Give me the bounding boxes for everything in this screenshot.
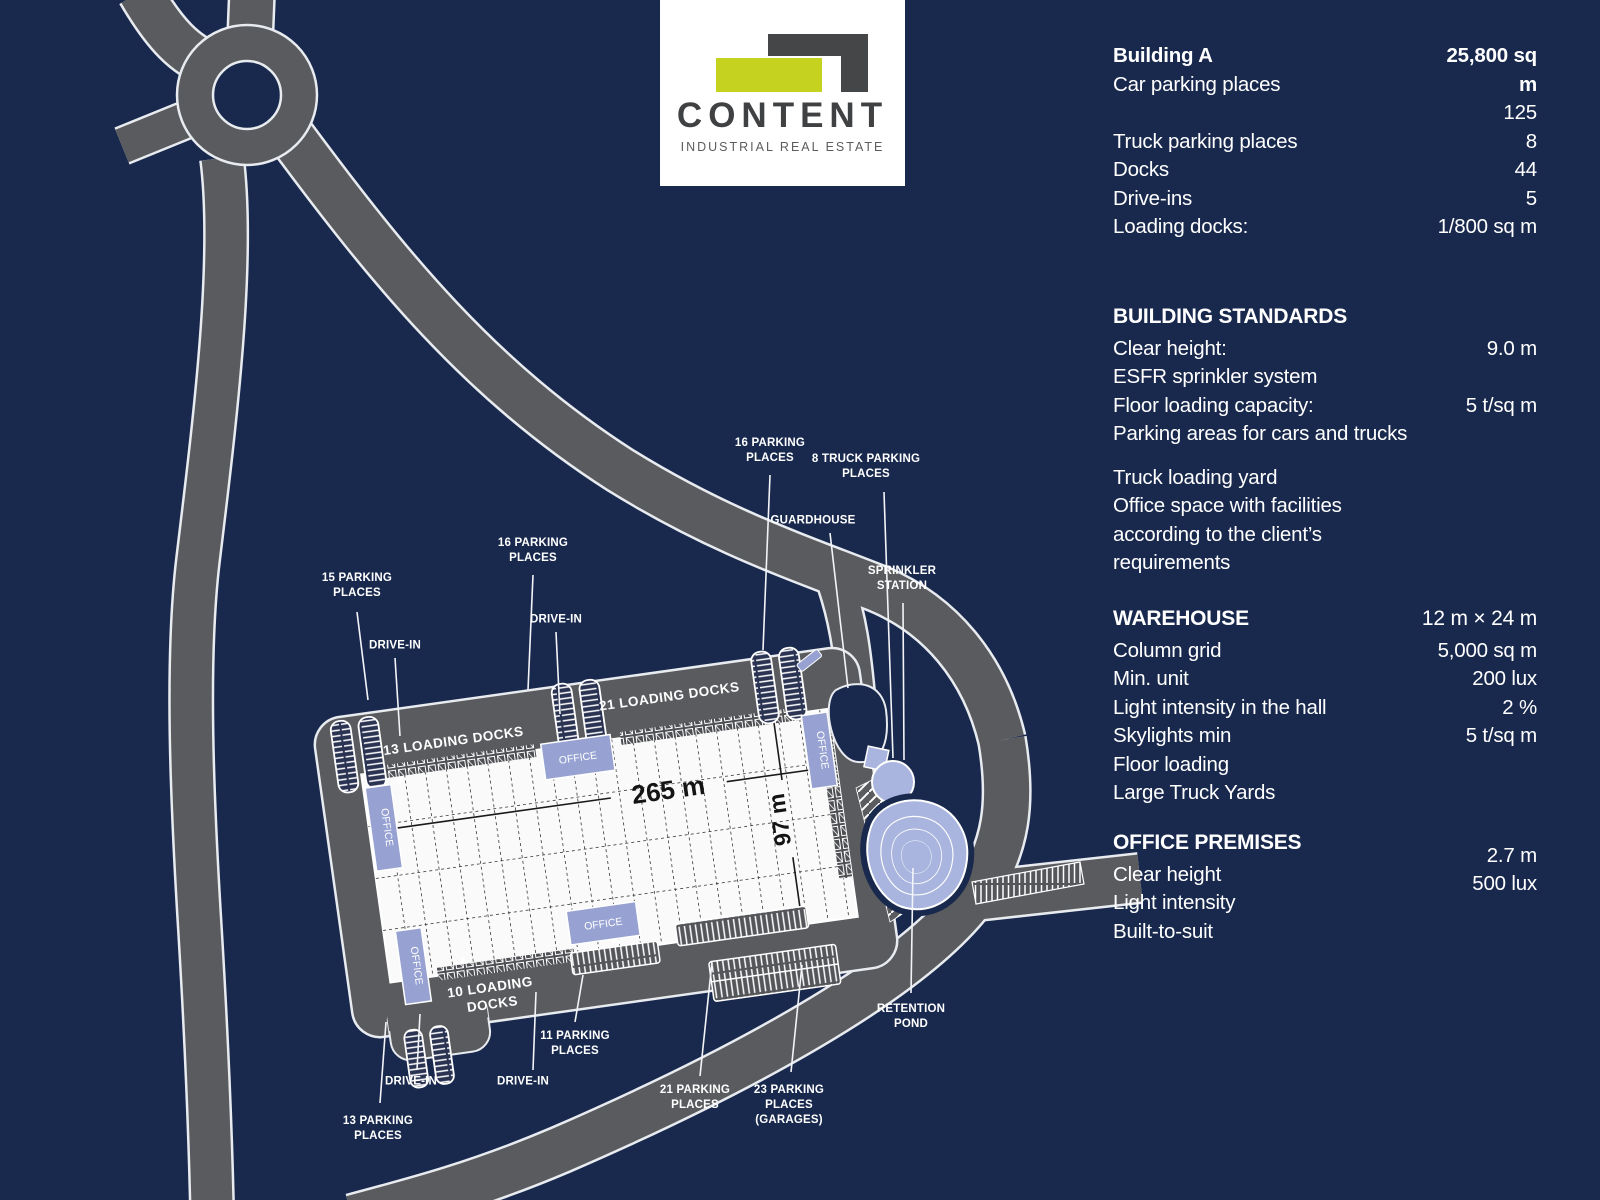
parking-11-label: 11 PARKING PLACES	[540, 1029, 610, 1059]
spec-value: 5	[1429, 185, 1537, 214]
spec-label: Built-to-suit	[1113, 918, 1429, 947]
parking-16-mid-label: 16 PARKING PLACES	[498, 536, 568, 566]
section-heading: WAREHOUSE	[1113, 604, 1249, 633]
parking-21-label: 21 PARKING PLACES	[660, 1083, 730, 1113]
spec-label: Office space with facilities according t…	[1113, 492, 1429, 578]
spec-value: 44	[1429, 156, 1537, 185]
spec-row: Column grid5,000 sq m	[1113, 637, 1537, 666]
logo-wordmark: CONTENT	[660, 96, 905, 136]
spec-row: 125	[1113, 99, 1537, 128]
spec-row: ESFR sprinkler system	[1113, 363, 1537, 392]
spec-value: 5,000 sq m	[1429, 637, 1537, 666]
spec-label: Floor loading	[1113, 751, 1429, 780]
spec-label: Loading docks:	[1113, 213, 1429, 242]
spec-value: 5 t/sq m	[1429, 722, 1537, 751]
spec-label: Min. unit	[1113, 665, 1429, 694]
spec-label: ESFR sprinkler system	[1113, 363, 1429, 392]
spec-value: 1/800 sq m	[1429, 213, 1537, 242]
spec-row: Docks44	[1113, 156, 1537, 185]
truck-parking-8-label: 8 TRUCK PARKING PLACES	[812, 452, 920, 482]
spec-value: 25,800 sq m	[1429, 42, 1537, 99]
drive-in-nw-label: DRIVE-IN	[369, 638, 421, 653]
spec-row: Floor loading capacity:5 t/sq m	[1113, 392, 1537, 421]
section-building-standards: BUILDING STANDARDSClear height:9.0 mESFR…	[1113, 302, 1537, 578]
spec-row: Clear height:9.0 m	[1113, 335, 1537, 364]
spec-value: 500 lux	[1429, 870, 1537, 899]
spec-label: Truck parking places	[1113, 128, 1429, 157]
spec-label: Column grid	[1113, 637, 1429, 666]
spec-row: Large Truck Yards	[1113, 779, 1537, 808]
spec-value: 2.7 m	[1429, 842, 1537, 871]
section-heading: BUILDING STANDARDS	[1113, 302, 1347, 331]
spec-row: Truck parking places8	[1113, 128, 1537, 157]
spec-label: Clear height:	[1113, 335, 1429, 364]
spec-value: 200 lux	[1429, 665, 1537, 694]
retention-pond-label: RETENTION POND	[877, 1002, 945, 1032]
drive-in-mid-label: DRIVE-IN	[530, 612, 582, 627]
spec-value: 2 %	[1429, 694, 1537, 723]
spec-row: Built-to-suit	[1113, 918, 1537, 947]
parking-15-label: 15 PARKING PLACES	[322, 571, 392, 601]
logo-tagline: INDUSTRIAL REAL ESTATE	[660, 140, 905, 154]
roundabout	[177, 25, 317, 165]
spec-label: Light intensity in the hall	[1113, 694, 1429, 723]
section-heading: OFFICE PREMISES	[1113, 828, 1301, 857]
specs-panel: Building A25,800 sq mCar parking places1…	[1113, 42, 1537, 966]
parking-13-label: 13 PARKING PLACES	[343, 1114, 413, 1144]
spec-label: Light intensity	[1113, 889, 1429, 918]
spec-row: Drive-ins5	[1113, 185, 1537, 214]
spec-row: Min. unit200 lux	[1113, 665, 1537, 694]
spec-label: Building A	[1113, 42, 1429, 71]
section-building-a: Building A25,800 sq mCar parking places1…	[1113, 42, 1537, 242]
spec-row: Skylights min5 t/sq m	[1113, 722, 1537, 751]
spec-label: Drive-ins	[1113, 185, 1429, 214]
road-network	[122, 0, 1140, 1200]
drive-in-s-label: DRIVE-IN	[497, 1074, 549, 1089]
section-heading-value: 12 m × 24 m	[1407, 604, 1537, 633]
section-office-premises: OFFICE PREMISESClear height2.7 mLight in…	[1113, 828, 1537, 947]
content-logo: CONTENT INDUSTRIAL REAL ESTATE	[660, 0, 905, 186]
drive-in-sw-label: DRIVE-IN	[385, 1074, 437, 1089]
parking-16-ne-label: 16 PARKING PLACES	[735, 436, 805, 466]
site-plan-page: 265 m 97 m	[0, 0, 1600, 1200]
spec-label: Truck loading yard	[1113, 464, 1429, 493]
spec-value: 125	[1429, 99, 1537, 128]
spec-label: Skylights min	[1113, 722, 1429, 751]
spec-row: Office space with facilities according t…	[1113, 492, 1537, 578]
spec-label: Large Truck Yards	[1113, 779, 1429, 808]
spec-label: Clear height	[1113, 861, 1429, 890]
spec-label: Car parking places	[1113, 71, 1429, 100]
section-warehouse: WAREHOUSE12 m × 24 mColumn grid5,000 sq …	[1113, 604, 1537, 808]
spec-row: Parking areas for cars and trucks	[1113, 420, 1537, 449]
spec-label: Parking areas for cars and trucks	[1113, 420, 1429, 449]
content-logo-mark	[660, 0, 905, 96]
spec-value: 8	[1429, 128, 1537, 157]
spec-row: Light intensity500 lux	[1113, 889, 1537, 918]
spec-row	[1113, 449, 1537, 464]
parking-23-label: 23 PARKING PLACES (GARAGES)	[754, 1083, 824, 1129]
sprinkler-station-label: SPRINKLER STATION	[868, 564, 936, 594]
spec-row: Truck loading yard	[1113, 464, 1537, 493]
spec-label: Floor loading capacity:	[1113, 392, 1429, 421]
spec-row: Loading docks:1/800 sq m	[1113, 213, 1537, 242]
spec-row: Floor loading	[1113, 751, 1537, 780]
spec-value: 9.0 m	[1429, 335, 1537, 364]
spec-row: Light intensity in the hall2 %	[1113, 694, 1537, 723]
section-heading-value	[1407, 302, 1537, 331]
retention-pond-shape	[867, 800, 967, 909]
guardhouse-label: GUARDHOUSE	[770, 513, 855, 528]
spec-label: Docks	[1113, 156, 1429, 185]
spec-value: 5 t/sq m	[1429, 392, 1537, 421]
